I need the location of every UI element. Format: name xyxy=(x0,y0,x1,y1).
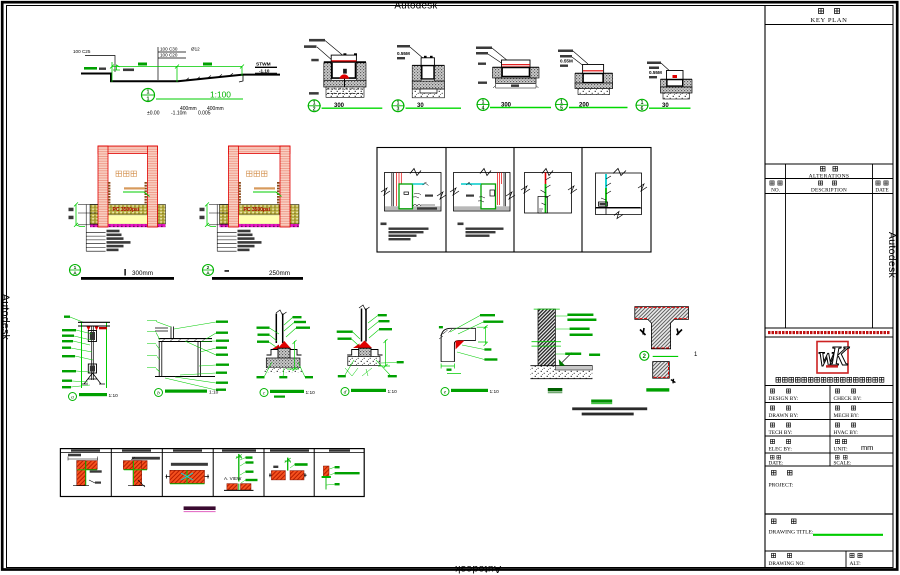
svg-text:1:10: 1:10 xyxy=(388,389,398,395)
svg-text:ALT:: ALT: xyxy=(850,561,862,567)
svg-text:DRAWING NO:: DRAWING NO: xyxy=(769,561,806,567)
svg-text:b: b xyxy=(157,391,160,397)
svg-text:PC 3500psi: PC 3500psi xyxy=(113,207,140,213)
svg-text:0.55M: 0.55M xyxy=(649,70,662,75)
svg-text:1: 1 xyxy=(74,265,77,271)
svg-text:PROJECT:: PROJECT: xyxy=(769,483,794,489)
svg-text:Autodesk: Autodesk xyxy=(886,232,898,279)
svg-text:0.55M: 0.55M xyxy=(397,51,410,56)
svg-text:300mm: 300mm xyxy=(132,270,153,277)
svg-text:1:100: 1:100 xyxy=(210,90,231,100)
svg-text:1:10: 1:10 xyxy=(306,390,316,396)
svg-text:CHECK BY:: CHECK BY: xyxy=(834,396,863,402)
svg-text:UNIT:: UNIT: xyxy=(834,447,849,453)
svg-text:DRAWN BY:: DRAWN BY: xyxy=(769,413,799,419)
svg-text:DRAWING TITLE:: DRAWING TITLE: xyxy=(769,530,814,536)
svg-text:3: 3 xyxy=(397,107,400,113)
svg-text:ELEC BY:: ELEC BY: xyxy=(769,447,793,453)
svg-text:100 C20: 100 C20 xyxy=(160,53,178,58)
svg-text:Ø12: Ø12 xyxy=(191,47,200,52)
svg-text:A. VIEW: A. VIEW xyxy=(224,476,242,481)
svg-text:6: 6 xyxy=(641,106,644,112)
svg-text:A: A xyxy=(206,271,210,277)
svg-text:250mm: 250mm xyxy=(269,270,290,277)
svg-text:HVAC BY:: HVAC BY: xyxy=(834,430,859,436)
svg-text:Autodesk: Autodesk xyxy=(394,1,437,12)
svg-text:±0.00: ±0.00 xyxy=(147,111,160,117)
svg-text:100 C30: 100 C30 xyxy=(160,47,178,52)
svg-text:-1.10m: -1.10m xyxy=(171,111,187,117)
svg-text:DATE:: DATE: xyxy=(769,461,784,467)
svg-text:5: 5 xyxy=(560,105,563,111)
svg-text:-1.10: -1.10 xyxy=(259,69,270,74)
svg-text:A: A xyxy=(73,271,77,277)
svg-text:SCALE:: SCALE: xyxy=(834,461,852,467)
svg-text:DATE: DATE xyxy=(875,188,888,194)
svg-text:MECH BY:: MECH BY: xyxy=(834,413,860,419)
svg-text:mm: mm xyxy=(861,443,873,452)
svg-text:Autodesk: Autodesk xyxy=(0,294,11,341)
svg-text:a: a xyxy=(71,395,74,401)
svg-text:100 C25: 100 C25 xyxy=(73,49,91,54)
svg-text:STWM: STWM xyxy=(256,62,271,68)
svg-text:TECH BY:: TECH BY: xyxy=(769,430,793,436)
svg-text:1:10: 1:10 xyxy=(209,390,219,396)
svg-text:ALTERATIONS: ALTERATIONS xyxy=(809,174,850,180)
svg-text:1:10: 1:10 xyxy=(109,393,119,399)
svg-text:1:10: 1:10 xyxy=(490,389,500,395)
svg-text:PC 3500psi: PC 3500psi xyxy=(244,207,271,213)
svg-text:2: 2 xyxy=(313,107,316,113)
svg-text:1: 1 xyxy=(147,97,150,103)
svg-text:4: 4 xyxy=(482,105,485,111)
svg-text:DESCRIPTION: DESCRIPTION xyxy=(811,188,847,194)
svg-text:DESIGN BY:: DESIGN BY: xyxy=(769,396,799,402)
svg-text:0.005: 0.005 xyxy=(198,111,211,117)
svg-text:d: d xyxy=(344,390,347,396)
svg-text:KEY PLAN: KEY PLAN xyxy=(811,17,848,24)
svg-text:1: 1 xyxy=(147,90,150,96)
svg-text:Autodesk: Autodesk xyxy=(454,563,501,575)
svg-text:2: 2 xyxy=(207,265,210,271)
svg-text:0.55M: 0.55M xyxy=(560,59,573,64)
svg-text:NO.: NO. xyxy=(771,188,780,194)
